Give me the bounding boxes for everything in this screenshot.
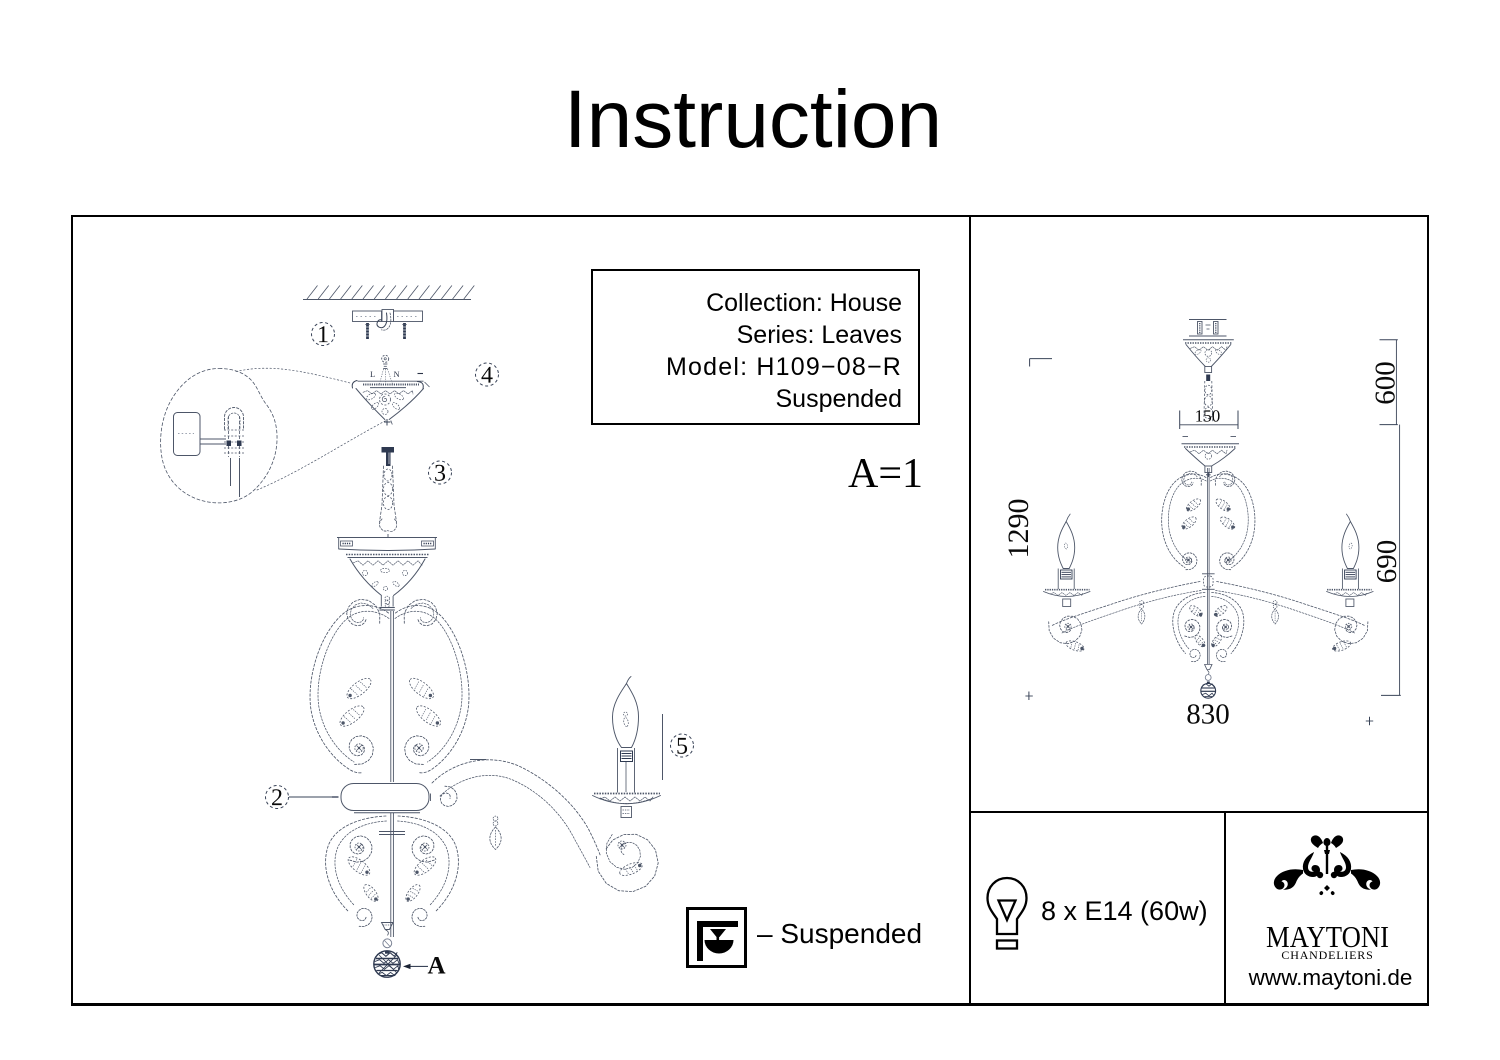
svg-text:3: 3 [434, 461, 446, 487]
svg-text:N: N [393, 369, 399, 379]
svg-text:690: 690 [1371, 540, 1403, 584]
svg-text:5: 5 [676, 734, 688, 760]
svg-text:2: 2 [271, 785, 283, 811]
svg-text:A: A [427, 953, 445, 980]
svg-text:830: 830 [1186, 698, 1230, 730]
svg-text:150: 150 [1195, 406, 1221, 425]
svg-text:1290: 1290 [1002, 499, 1035, 559]
svg-text:L: L [370, 369, 375, 379]
svg-text:1: 1 [317, 322, 329, 348]
svg-text:600: 600 [1370, 361, 1402, 405]
svg-text:4: 4 [481, 363, 493, 389]
